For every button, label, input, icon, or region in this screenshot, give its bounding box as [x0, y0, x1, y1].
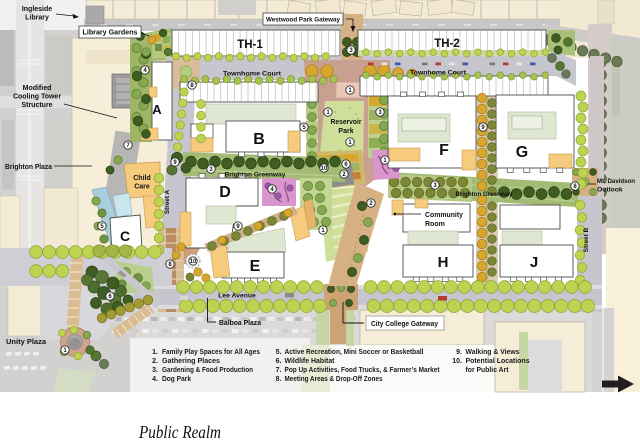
svg-text:10.: 10. — [452, 358, 462, 365]
svg-text:Brighton Greenway: Brighton Greenway — [225, 172, 286, 179]
svg-text:Library: Library — [25, 15, 49, 22]
svg-text:Street A: Street A — [164, 189, 171, 214]
svg-text:Brighton Greenway: Brighton Greenway — [455, 191, 513, 198]
svg-text:Library Gardens: Library Gardens — [83, 30, 138, 37]
svg-text:Westwood Park Gateway: Westwood Park Gateway — [266, 17, 340, 24]
svg-text:Townhome Court: Townhome Court — [223, 71, 282, 78]
svg-text:4.: 4. — [152, 376, 158, 383]
svg-text:Cooling Tower: Cooling Tower — [13, 94, 61, 101]
svg-text:F: F — [439, 142, 449, 159]
svg-text:Park: Park — [338, 128, 353, 135]
svg-text:2.: 2. — [152, 358, 158, 365]
svg-text:7.: 7. — [276, 367, 282, 374]
svg-text:1.: 1. — [152, 349, 158, 356]
svg-text:9.: 9. — [456, 349, 462, 356]
svg-text:3.: 3. — [152, 367, 158, 374]
svg-text:for Public Art: for Public Art — [466, 367, 510, 374]
svg-text:C: C — [120, 228, 130, 244]
svg-text:Walking & Views: Walking & Views — [466, 349, 520, 356]
svg-text:Ingleside: Ingleside — [22, 6, 52, 13]
svg-text:J: J — [530, 254, 538, 271]
svg-text:Pop Up Activities, Food Trucks: Pop Up Activities, Food Trucks, & Farmer… — [285, 367, 441, 374]
svg-text:6.: 6. — [276, 358, 282, 365]
svg-text:Meeting Areas & Drop-Off Zones: Meeting Areas & Drop-Off Zones — [285, 376, 383, 383]
svg-text:Care: Care — [134, 184, 150, 191]
svg-text:B: B — [253, 131, 265, 148]
svg-text:Gathering Places: Gathering Places — [162, 358, 220, 365]
svg-text:Public Realm: Public Realm — [138, 422, 221, 442]
svg-text:G: G — [516, 144, 528, 161]
svg-text:10: 10 — [321, 166, 328, 172]
svg-text:Structure: Structure — [21, 102, 52, 109]
svg-text:Dog Park: Dog Park — [162, 376, 191, 383]
svg-text:Outlook: Outlook — [597, 187, 623, 194]
svg-text:Balboa Plaza: Balboa Plaza — [219, 318, 262, 327]
svg-text:Potential Locations: Potential Locations — [466, 358, 530, 365]
svg-text:Townhome Court: Townhome Court — [410, 70, 467, 77]
svg-text:Active Recreation, Mini Soccer: Active Recreation, Mini Soccer or Basket… — [285, 349, 424, 356]
svg-text:10: 10 — [190, 259, 197, 265]
svg-text:Brighton Plaza: Brighton Plaza — [5, 164, 52, 171]
svg-text:Lee Avenue: Lee Avenue — [218, 293, 256, 300]
svg-text:8.: 8. — [276, 376, 282, 383]
svg-text:City College Gateway: City College Gateway — [371, 319, 438, 328]
svg-text:Modified: Modified — [23, 85, 52, 92]
svg-text:Mt. Davidson: Mt. Davidson — [597, 178, 635, 185]
svg-text:E: E — [250, 258, 261, 275]
svg-text:Family Play Spaces for All Age: Family Play Spaces for All Ages — [162, 349, 260, 356]
svg-text:Community: Community — [425, 212, 463, 219]
svg-text:H: H — [438, 254, 449, 271]
svg-text:Child: Child — [133, 175, 151, 182]
svg-text:Gardening & Food Production: Gardening & Food Production — [162, 367, 253, 374]
svg-text:Wildlife Habitat: Wildlife Habitat — [285, 358, 336, 365]
svg-text:5.: 5. — [276, 349, 282, 356]
svg-text:TH-1: TH-1 — [237, 39, 263, 51]
svg-text:Room: Room — [425, 221, 445, 228]
svg-text:Unity Plaza: Unity Plaza — [6, 339, 46, 346]
svg-text:Reservoir: Reservoir — [331, 119, 362, 126]
svg-text:Street B: Street B — [583, 227, 590, 252]
svg-text:TH-2: TH-2 — [434, 38, 460, 50]
svg-text:D: D — [219, 184, 231, 201]
svg-text:A: A — [152, 102, 162, 117]
